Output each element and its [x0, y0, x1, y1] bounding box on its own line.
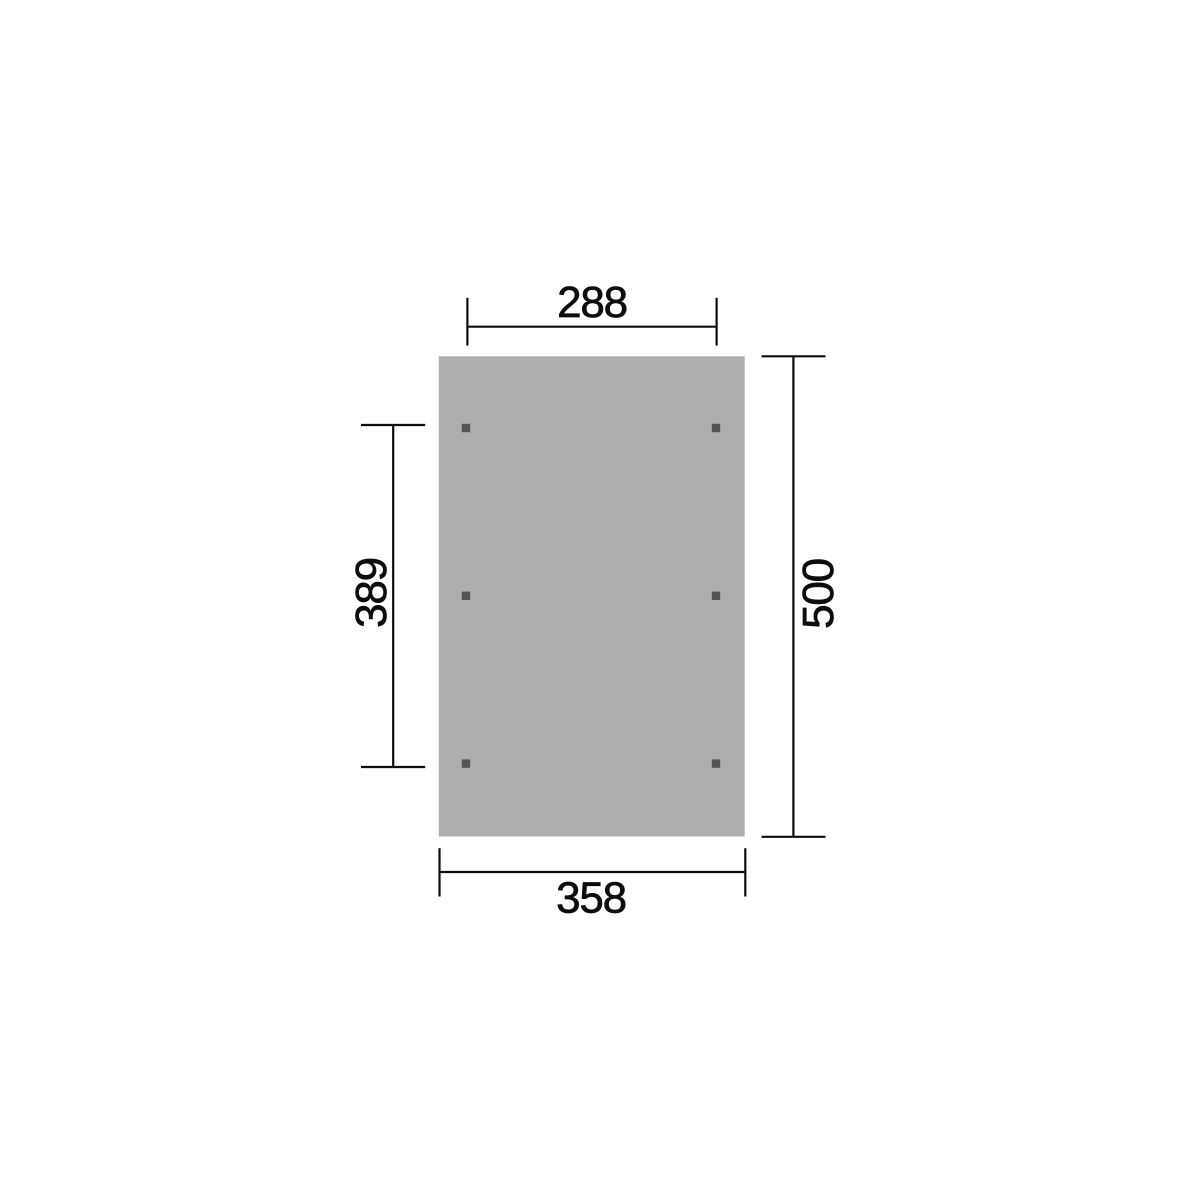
svg-text:288: 288: [557, 278, 627, 327]
svg-text:500: 500: [794, 559, 843, 629]
svg-text:358: 358: [556, 874, 626, 923]
svg-text:389: 389: [347, 558, 396, 628]
